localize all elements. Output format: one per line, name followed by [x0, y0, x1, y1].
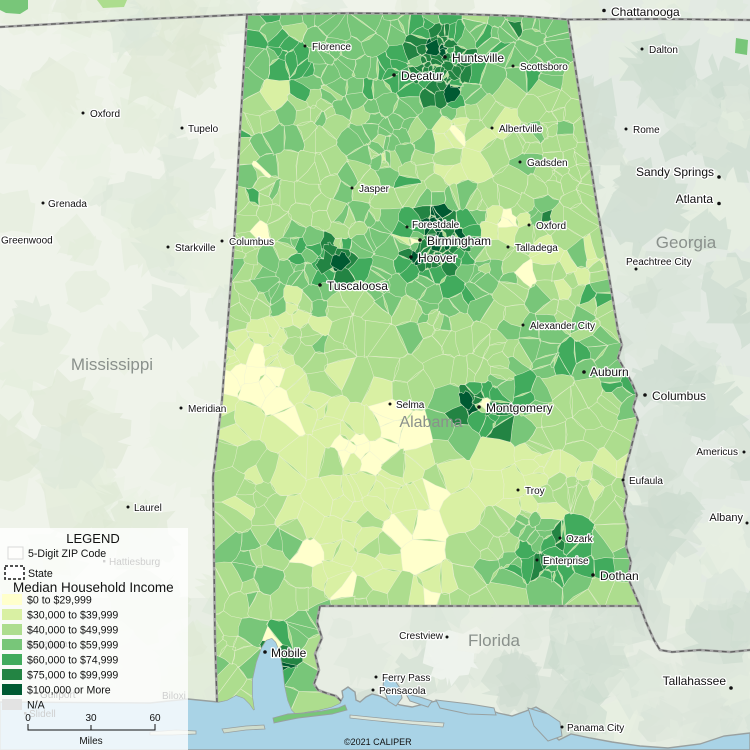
svg-text:Americus: Americus [696, 447, 738, 458]
svg-text:Miles: Miles [79, 736, 102, 747]
svg-text:Dothan: Dothan [600, 569, 639, 583]
svg-text:Dalton: Dalton [649, 45, 678, 56]
svg-text:Scottsboro: Scottsboro [520, 62, 568, 73]
svg-text:Atlanta: Atlanta [676, 192, 714, 206]
svg-text:$0 to $29,999: $0 to $29,999 [27, 595, 92, 607]
svg-text:Mobile: Mobile [271, 646, 307, 660]
svg-text:Rome: Rome [633, 125, 660, 136]
svg-text:State: State [28, 568, 53, 580]
svg-text:Huntsville: Huntsville [452, 51, 504, 65]
svg-text:5-Digit ZIP Code: 5-Digit ZIP Code [28, 548, 106, 560]
svg-text:$30,000 to $39,999: $30,000 to $39,999 [27, 610, 118, 622]
svg-text:Albany: Albany [709, 512, 743, 524]
svg-text:Tupelo: Tupelo [188, 124, 219, 135]
svg-text:Florida: Florida [468, 631, 521, 650]
svg-text:Oxford: Oxford [536, 221, 566, 232]
svg-text:Median Household Income: Median Household Income [13, 580, 174, 595]
svg-text:Gadsden: Gadsden [527, 158, 568, 169]
svg-text:Greenwood: Greenwood [1, 236, 53, 247]
svg-text:Hoover: Hoover [418, 251, 457, 265]
svg-text:$75,000 to $99,999: $75,000 to $99,999 [27, 670, 118, 682]
svg-text:Peachtree City: Peachtree City [626, 257, 692, 268]
svg-text:$60,000 to $74,999: $60,000 to $74,999 [27, 655, 118, 667]
svg-text:LEGEND: LEGEND [66, 531, 119, 546]
svg-text:$40,000 to $49,999: $40,000 to $49,999 [27, 625, 118, 637]
svg-text:Selma: Selma [396, 400, 425, 411]
svg-text:Columbus: Columbus [229, 237, 274, 248]
svg-text:Laurel: Laurel [134, 503, 162, 514]
svg-text:Tuscaloosa: Tuscaloosa [327, 279, 388, 293]
svg-text:Panama City: Panama City [567, 723, 624, 734]
svg-text:Alabama: Alabama [399, 414, 462, 431]
svg-text:Ferry Pass: Ferry Pass [382, 673, 430, 684]
svg-text:Birmingham: Birmingham [427, 234, 491, 248]
svg-text:Chattanooga: Chattanooga [611, 5, 680, 19]
svg-text:30: 30 [85, 713, 97, 724]
svg-text:Albertville: Albertville [499, 124, 543, 135]
svg-text:Montgomery: Montgomery [486, 401, 553, 415]
svg-text:Meridian: Meridian [188, 404, 226, 415]
svg-text:Troy: Troy [525, 486, 545, 497]
svg-text:Enterprise: Enterprise [543, 556, 589, 567]
svg-text:Grenada: Grenada [48, 199, 87, 210]
svg-text:Jasper: Jasper [359, 184, 390, 195]
svg-text:Georgia: Georgia [656, 233, 717, 252]
svg-text:Eufaula: Eufaula [629, 476, 663, 487]
svg-text:Auburn: Auburn [590, 365, 629, 379]
svg-text:Crestview: Crestview [399, 631, 444, 642]
svg-text:Alexander City: Alexander City [530, 321, 595, 332]
svg-text:Sandy Springs: Sandy Springs [636, 165, 714, 179]
svg-text:Starkville: Starkville [175, 243, 216, 254]
svg-text:0: 0 [25, 713, 31, 724]
svg-text:Pensacola: Pensacola [379, 686, 426, 697]
svg-text:$100,000 or More: $100,000 or More [27, 685, 111, 697]
svg-text:Columbus: Columbus [652, 389, 706, 403]
svg-text:Tallahassee: Tallahassee [663, 674, 727, 688]
svg-text:Oxford: Oxford [90, 109, 120, 120]
svg-text:$50,000 to $59,999: $50,000 to $59,999 [27, 640, 118, 652]
svg-text:©2021 CALIPER: ©2021 CALIPER [344, 737, 412, 747]
svg-text:Mississippi: Mississippi [71, 355, 153, 374]
svg-text:Talladega: Talladega [515, 243, 558, 254]
svg-text:60: 60 [149, 713, 161, 724]
svg-text:Decatur: Decatur [401, 69, 443, 83]
svg-text:Forestdale: Forestdale [412, 220, 460, 231]
svg-text:N/A: N/A [27, 700, 46, 712]
svg-text:Ozark: Ozark [566, 534, 594, 545]
svg-text:Florence: Florence [312, 42, 351, 53]
